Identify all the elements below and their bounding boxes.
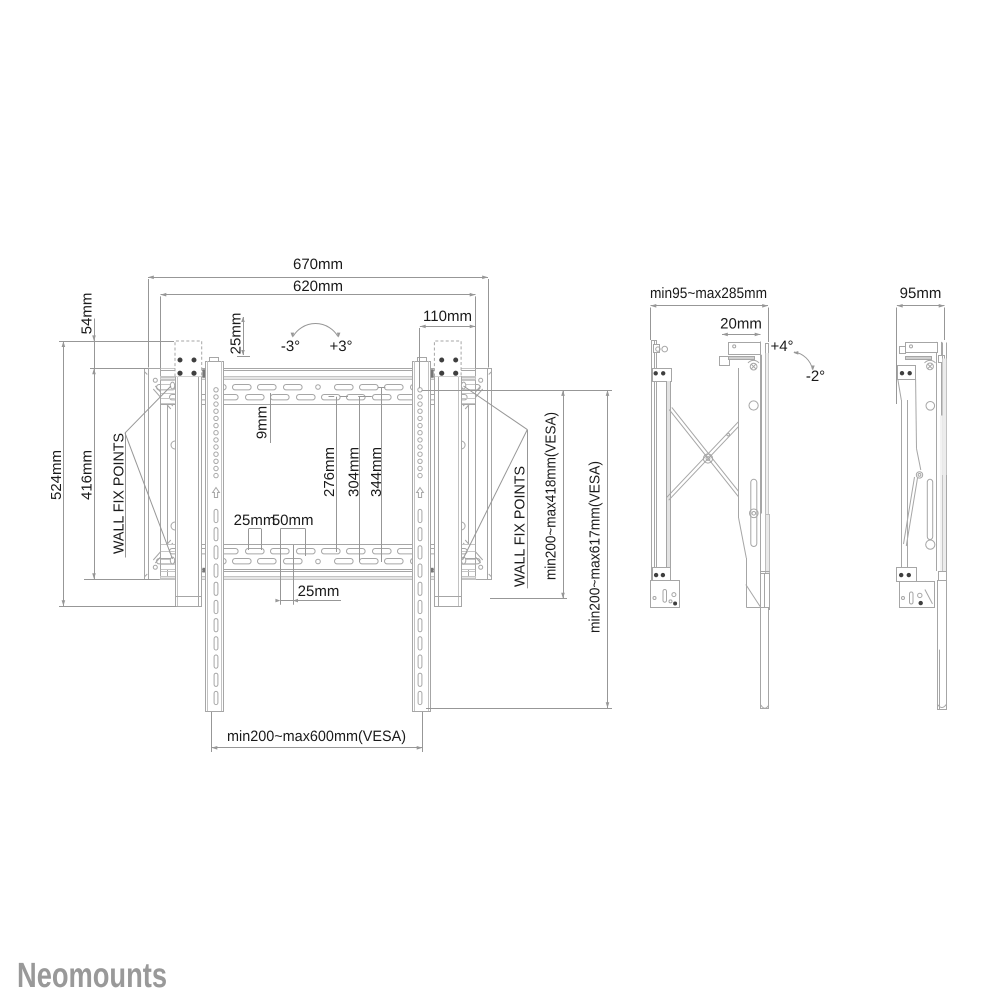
svg-text:25mm: 25mm <box>298 583 340 600</box>
svg-text:WALL FIX POINTS: WALL FIX POINTS <box>110 433 127 554</box>
svg-text:25mm: 25mm <box>228 313 245 355</box>
svg-text:+4°: +4° <box>770 338 793 355</box>
svg-text:95mm: 95mm <box>900 285 942 302</box>
svg-text:344mm: 344mm <box>368 447 385 497</box>
svg-text:20mm: 20mm <box>720 315 762 332</box>
svg-text:524mm: 524mm <box>48 450 65 500</box>
svg-text:Neomounts: Neomounts <box>17 956 167 995</box>
svg-text:416mm: 416mm <box>79 450 96 500</box>
svg-text:670mm: 670mm <box>293 256 343 273</box>
svg-text:-3°: -3° <box>281 338 300 355</box>
svg-text:+3°: +3° <box>329 338 352 355</box>
svg-text:54mm: 54mm <box>79 293 96 335</box>
svg-text:min200~max600mm(VESA): min200~max600mm(VESA) <box>227 728 406 745</box>
svg-text:620mm: 620mm <box>293 278 343 295</box>
svg-text:50mm: 50mm <box>272 512 314 529</box>
svg-text:110mm: 110mm <box>423 308 472 325</box>
svg-text:-2°: -2° <box>806 368 825 385</box>
svg-text:25mm: 25mm <box>234 512 276 529</box>
svg-text:min95~max285mm: min95~max285mm <box>650 285 767 302</box>
svg-text:276mm: 276mm <box>321 447 338 497</box>
svg-text:9mm: 9mm <box>254 406 271 439</box>
svg-text:WALL FIX POINTS: WALL FIX POINTS <box>512 466 529 587</box>
svg-text:min200~max418mm(VESA): min200~max418mm(VESA) <box>543 412 560 580</box>
svg-text:min200~max617mm(VESA): min200~max617mm(VESA) <box>587 461 604 633</box>
